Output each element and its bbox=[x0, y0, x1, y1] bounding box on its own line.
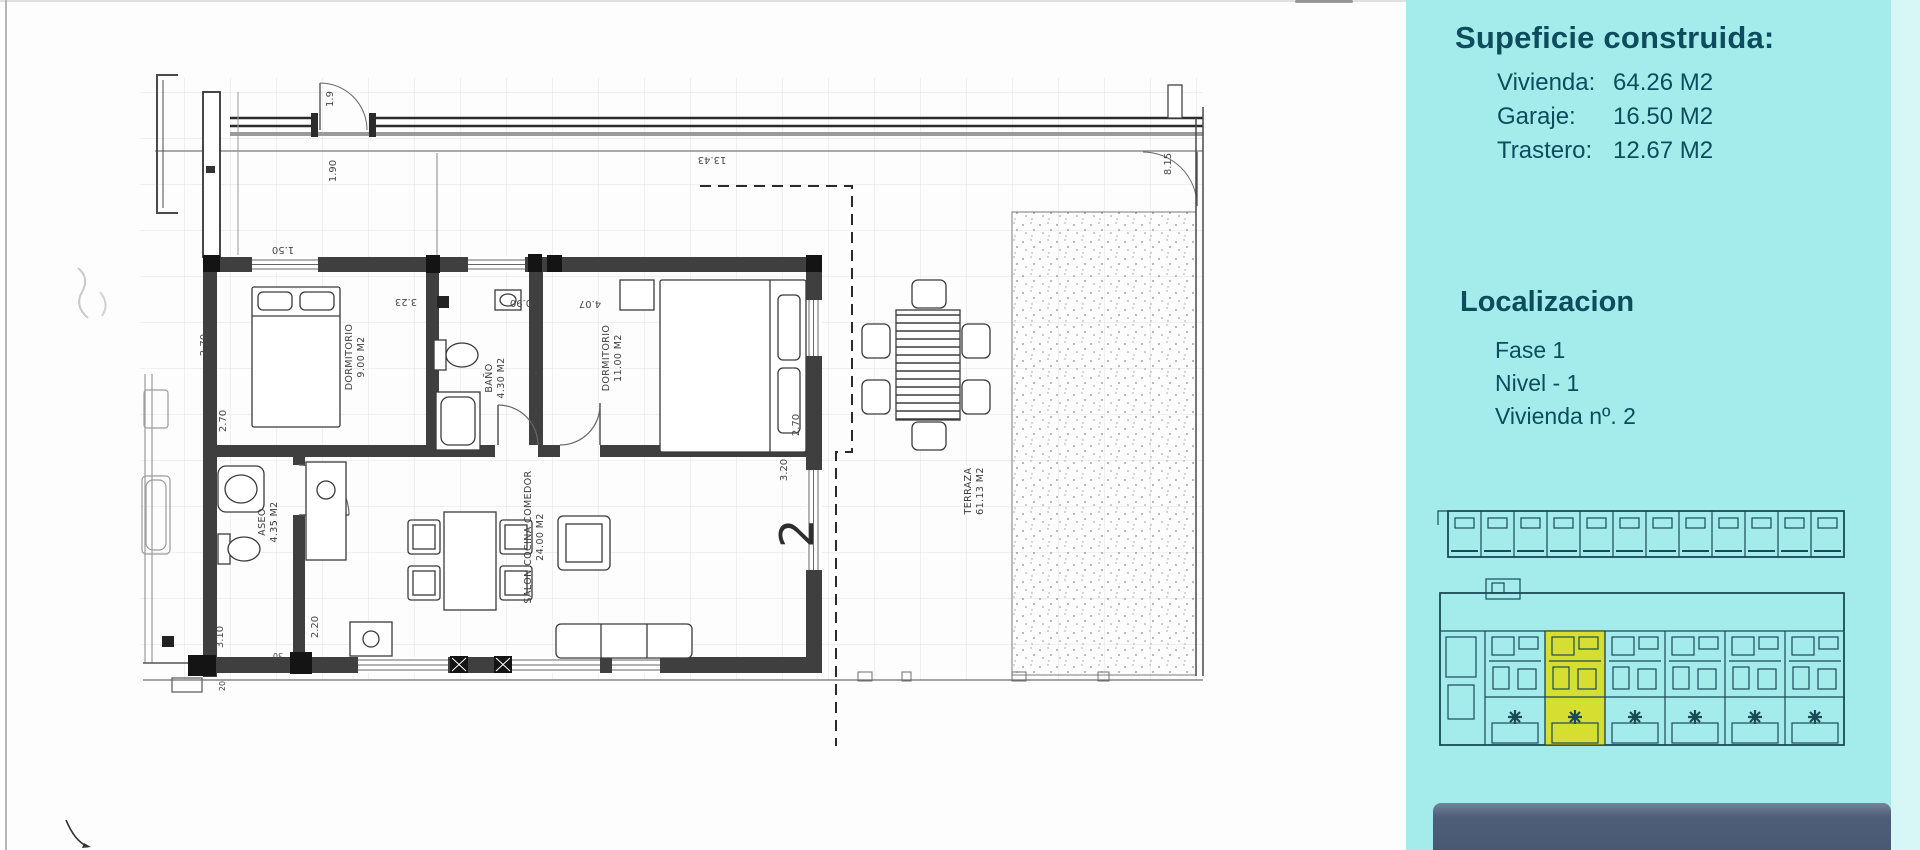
surface-row-garaje: Garaje: 16.50 M2 bbox=[1497, 100, 1713, 134]
window-salon-2 bbox=[512, 657, 600, 673]
minimap-dwellings-row bbox=[1440, 579, 1845, 745]
room-label-dormitorio-1: DORMITORIO bbox=[344, 324, 355, 391]
dim-bano-width: 0.90 bbox=[510, 297, 532, 308]
location-fase: Fase 1 bbox=[1495, 334, 1636, 367]
dim-dorm1-width: 3.23 bbox=[395, 296, 417, 307]
location-vivienda: Vivienda nº. 2 bbox=[1495, 400, 1636, 433]
surface-value: 16.50 M2 bbox=[1613, 100, 1713, 134]
room-label-salon: SALON COCINA COMEDOR bbox=[523, 470, 534, 603]
dim-right-height: 8.15 bbox=[1163, 153, 1174, 175]
dim-dorm1-height: 2.70 bbox=[199, 334, 210, 356]
room-label-terraza: TERRAZA bbox=[963, 467, 974, 515]
room-area-terraza: 61.13 M2 bbox=[975, 467, 986, 515]
window-salon-3 bbox=[612, 657, 660, 673]
window-dorm2 bbox=[806, 300, 822, 356]
scan-marks bbox=[66, 268, 106, 848]
window-salon-1 bbox=[358, 657, 448, 673]
room-label-dormitorio-2: DORMITORIO bbox=[601, 325, 612, 392]
dim-terrace-b: 3.20 bbox=[779, 459, 790, 481]
site-minimap bbox=[1432, 505, 1852, 755]
surface-label: Vivienda: bbox=[1497, 66, 1613, 100]
dim-aseo-height: 2.70 bbox=[218, 410, 229, 432]
scan-smudge bbox=[1295, 0, 1353, 3]
dim-terrace-a: 2.70 bbox=[791, 414, 802, 436]
room-label-aseo: ASEO bbox=[257, 508, 268, 536]
info-panel: Supeficie construida: Vivienda: 64.26 M2… bbox=[1406, 0, 1891, 850]
surface-label: Trastero: bbox=[1497, 134, 1613, 168]
location-nivel: Nivel - 1 bbox=[1495, 367, 1636, 400]
surface-value: 64.26 M2 bbox=[1613, 66, 1713, 100]
dim-top-width: 13.43 bbox=[698, 154, 727, 165]
surface-label: Garaje: bbox=[1497, 100, 1613, 134]
floor-plan-drawing: DORMITORIO 9.00 M2 BAÑO 4.30 M2 DORMITOR… bbox=[0, 0, 1210, 850]
room-label-bano: BAÑO bbox=[484, 363, 495, 392]
dim-dorm2-width: 4.07 bbox=[579, 298, 601, 309]
dim-entry2: 1.90 bbox=[328, 160, 339, 182]
surface-list: Vivienda: 64.26 M2 Garaje: 16.50 M2 Tras… bbox=[1497, 66, 1713, 168]
gravel-area bbox=[1012, 212, 1196, 675]
scanned-plan-page: DORMITORIO 9.00 M2 BAÑO 4.30 M2 DORMITOR… bbox=[0, 0, 1920, 850]
window-dorm1 bbox=[252, 257, 318, 272]
room-area-bano: 4.30 M2 bbox=[496, 357, 507, 398]
unit-number: 2 bbox=[770, 518, 824, 548]
location-list: Fase 1 Nivel - 1 Vivienda nº. 2 bbox=[1495, 334, 1636, 433]
room-area-dormitorio-2: 11.00 M2 bbox=[613, 334, 624, 382]
dim-wall-a: 20 bbox=[218, 681, 227, 691]
dim-kitchen: 2.20 bbox=[310, 616, 321, 638]
room-area-aseo: 4.35 M2 bbox=[269, 501, 280, 542]
window-bano bbox=[468, 257, 525, 272]
footer-bar bbox=[1433, 803, 1891, 850]
panel-right-strip bbox=[1891, 0, 1920, 850]
dim-entry: 1.9 bbox=[325, 91, 336, 107]
dim-door: 1.50 bbox=[272, 244, 294, 255]
dim-aseo-v: 3.10 bbox=[215, 626, 226, 648]
surface-row-trastero: Trastero: 12.67 M2 bbox=[1497, 134, 1713, 168]
surface-value: 12.67 M2 bbox=[1613, 134, 1713, 168]
room-area-salon: 24.00 M2 bbox=[535, 513, 546, 561]
minimap-garage-row bbox=[1438, 511, 1844, 557]
surface-row-vivienda: Vivienda: 64.26 M2 bbox=[1497, 66, 1713, 100]
room-area-dormitorio-1: 9.00 M2 bbox=[356, 336, 367, 377]
surface-title: Supeficie construida: bbox=[1455, 20, 1774, 56]
dim-wall-b: 30 bbox=[273, 651, 283, 660]
location-title: Localizacion bbox=[1460, 286, 1634, 319]
